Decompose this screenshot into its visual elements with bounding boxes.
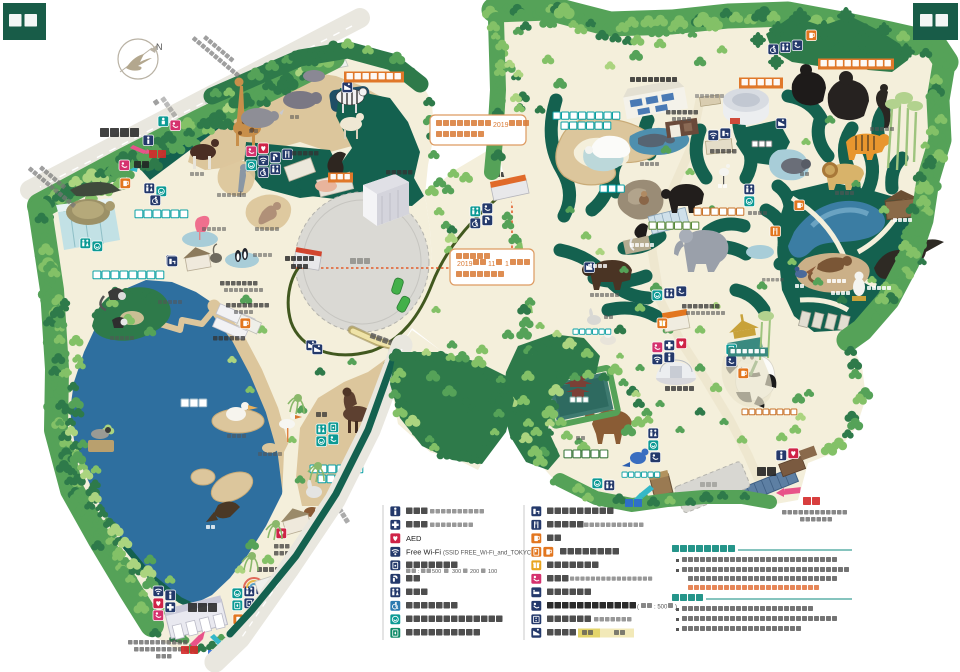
svg-text:2019: 2019 xyxy=(493,122,509,129)
svg-text:2019: 2019 xyxy=(457,261,473,268)
svg-text:100: 100 xyxy=(488,569,497,575)
svg-text:500: 500 xyxy=(432,569,441,575)
svg-text:(: ( xyxy=(637,605,639,611)
svg-text:1: 1 xyxy=(505,261,509,268)
svg-text:N: N xyxy=(156,42,163,52)
svg-text:300: 300 xyxy=(452,569,461,575)
svg-text:200: 200 xyxy=(470,569,479,575)
svg-text:(SSID FREE_Wi-Fi_and_TOKYO): (SSID FREE_Wi-Fi_and_TOKYO) xyxy=(443,551,534,557)
svg-text:: 500: : 500 xyxy=(654,605,668,611)
svg-text:Free Wi-Fi: Free Wi-Fi xyxy=(406,548,441,557)
svg-text:11: 11 xyxy=(488,261,495,268)
svg-text:AED: AED xyxy=(406,534,422,543)
